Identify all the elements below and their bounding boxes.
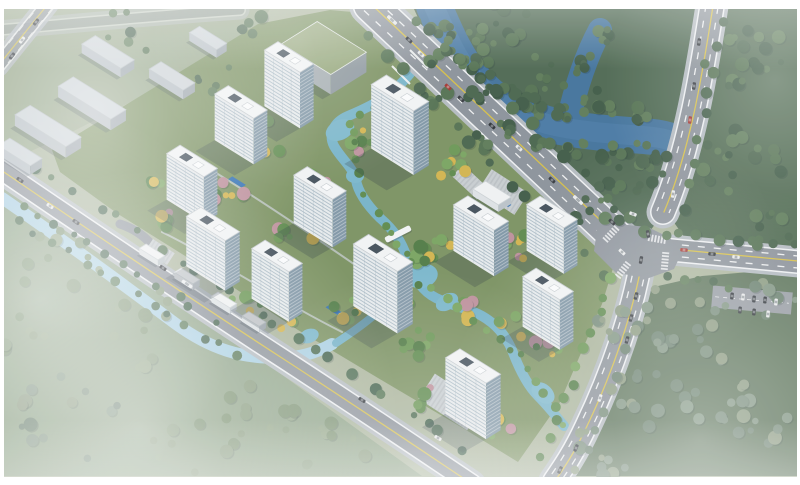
atmospheric-haze [0,0,800,485]
architectural-rendering-page [0,0,800,485]
aerial-site-plan-rendering [0,0,800,485]
